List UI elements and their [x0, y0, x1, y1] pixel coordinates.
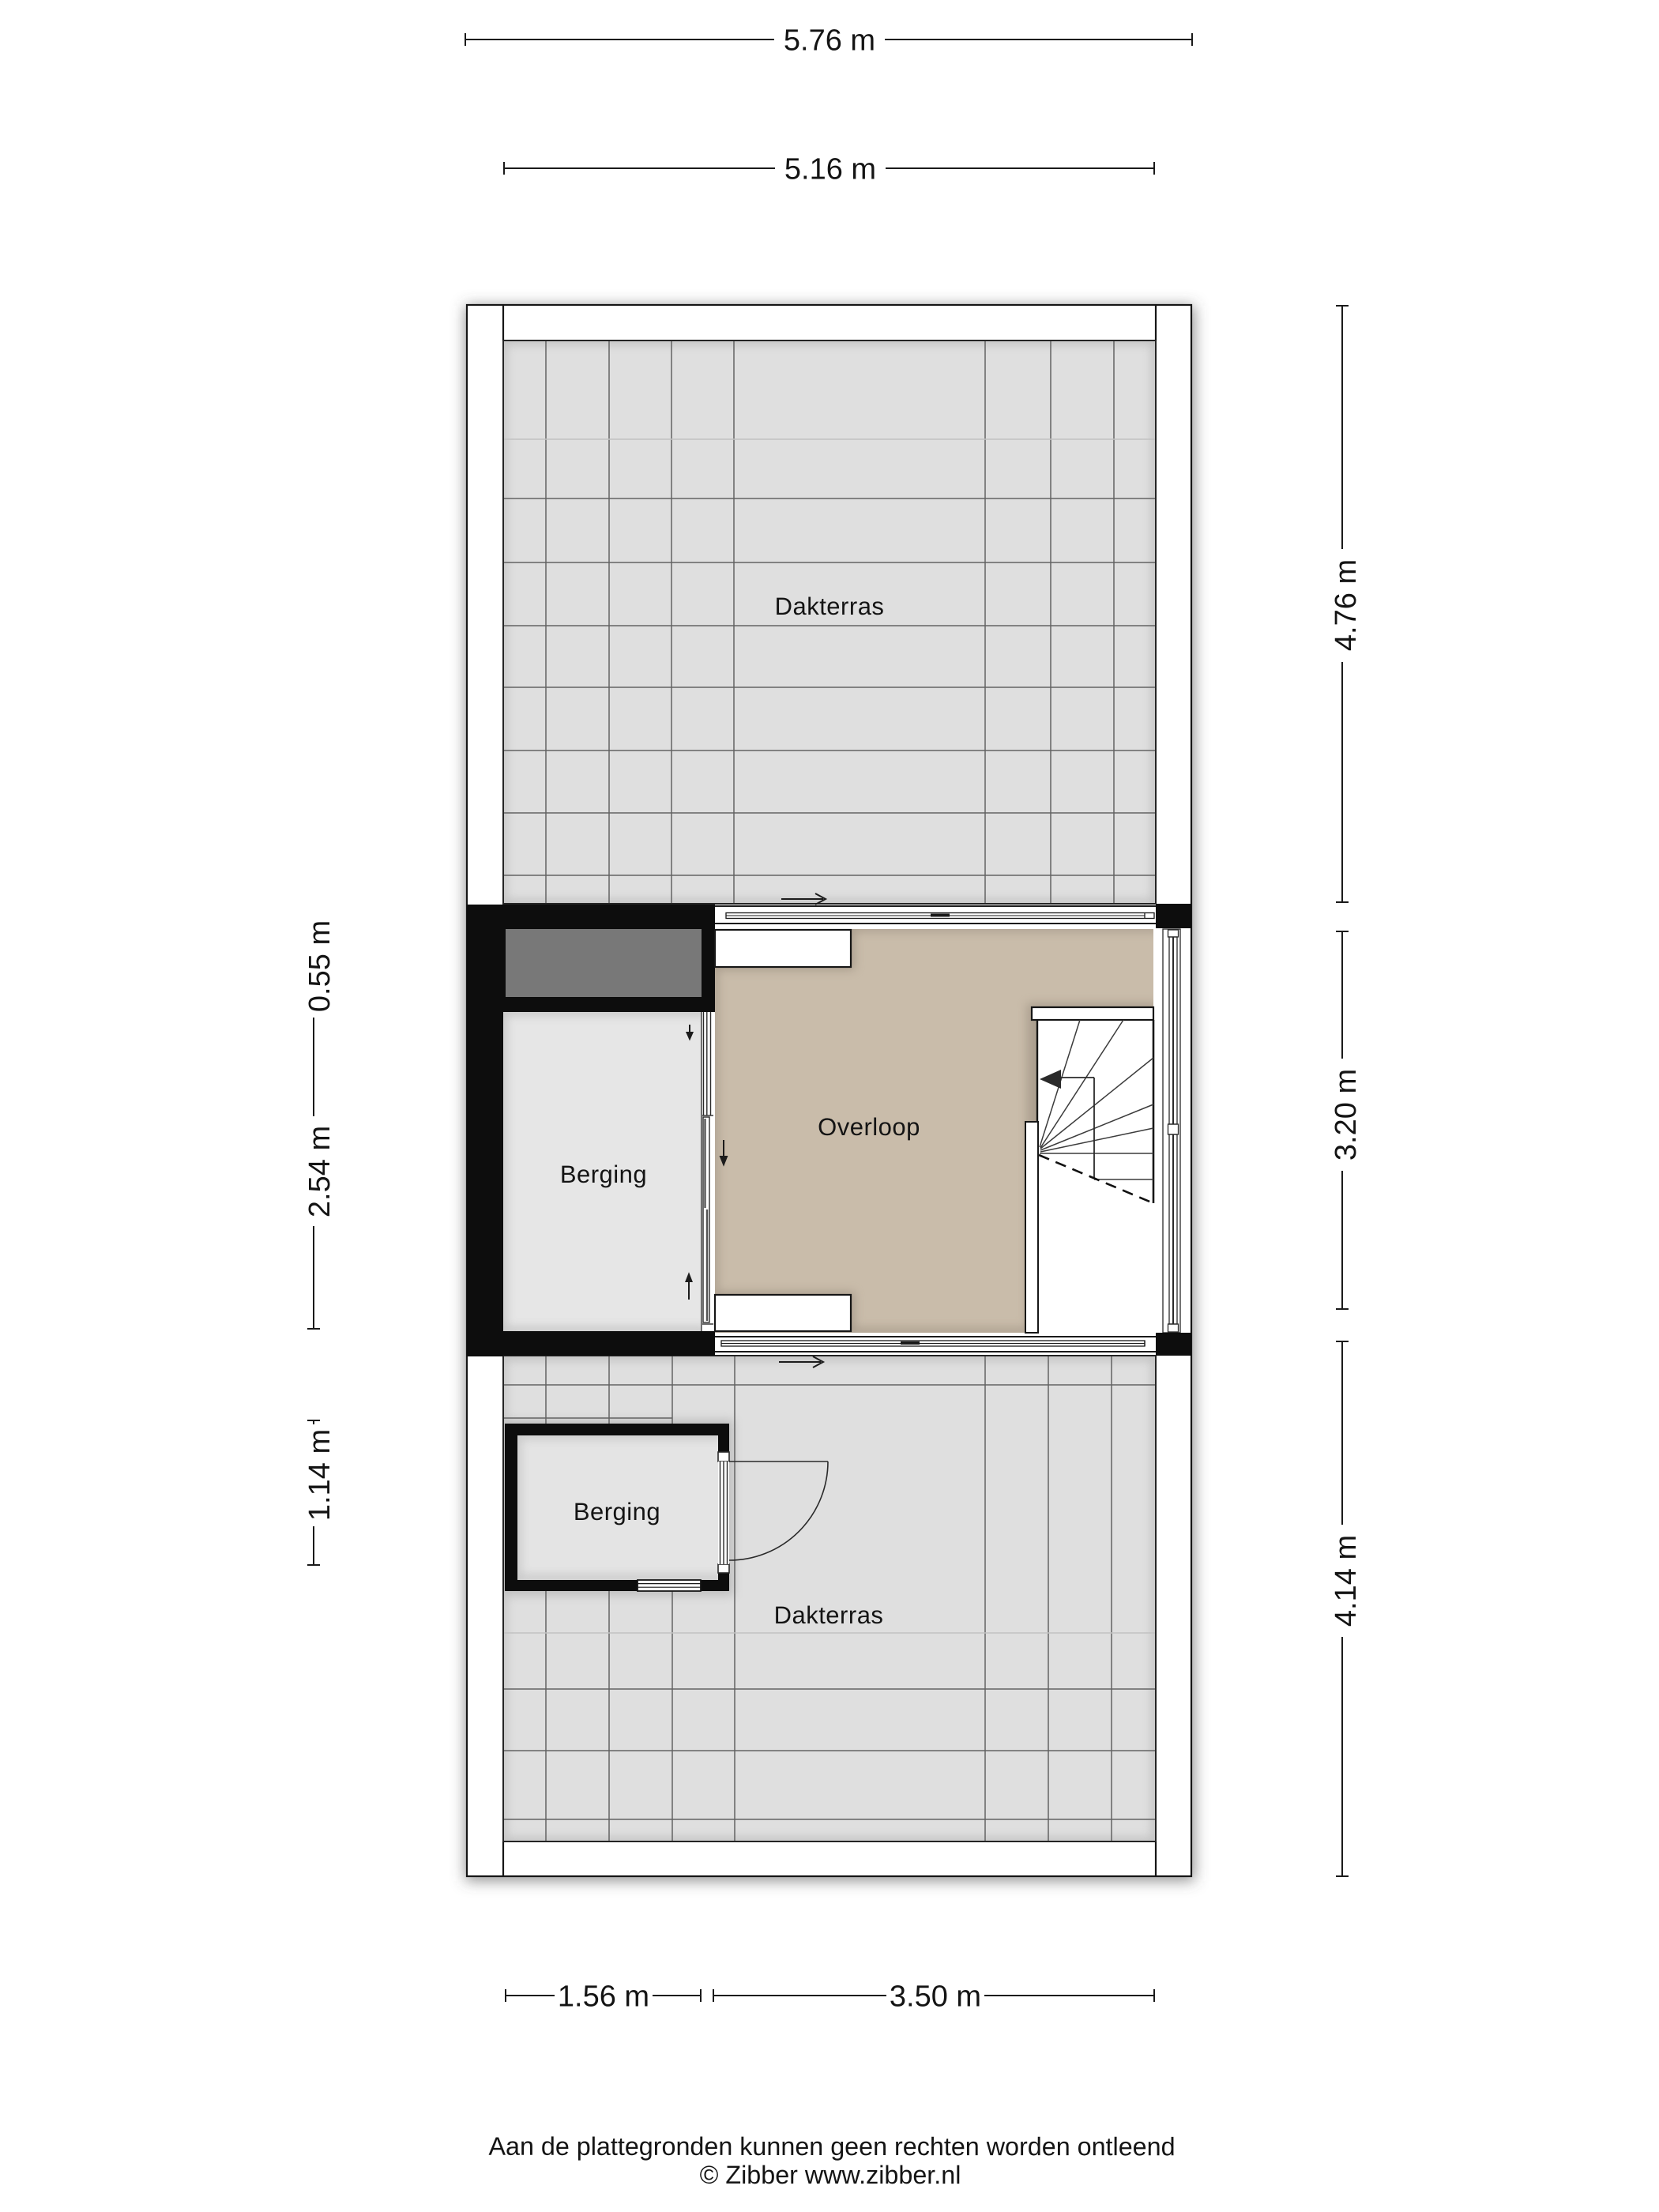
svg-text:0.55 m: 0.55 m [303, 920, 337, 1012]
svg-text:Dakterras: Dakterras [775, 592, 885, 620]
svg-text:3.50 m: 3.50 m [890, 1980, 981, 2013]
svg-text:2.54 m: 2.54 m [303, 1126, 337, 1217]
svg-text:4.14 m: 4.14 m [1330, 1535, 1363, 1627]
svg-text:Aan de plattegronden kunnen ge: Aan de plattegronden kunnen geen rechten… [488, 2132, 1175, 2161]
svg-text:Berging: Berging [574, 1498, 660, 1525]
svg-text:Berging: Berging [560, 1161, 647, 1188]
svg-text:1.56 m: 1.56 m [558, 1980, 649, 2013]
svg-text:Overloop: Overloop [818, 1113, 920, 1141]
svg-text:1.14 m: 1.14 m [303, 1429, 337, 1521]
svg-text:5.16 m: 5.16 m [784, 152, 876, 186]
svg-text:3.20 m: 3.20 m [1330, 1069, 1363, 1161]
svg-text:4.76 m: 4.76 m [1330, 559, 1363, 651]
svg-text:Dakterras: Dakterras [774, 1601, 884, 1629]
svg-text:5.76 m: 5.76 m [784, 24, 875, 57]
svg-text:© Zibber www.zibber.nl: © Zibber www.zibber.nl [700, 2161, 961, 2189]
